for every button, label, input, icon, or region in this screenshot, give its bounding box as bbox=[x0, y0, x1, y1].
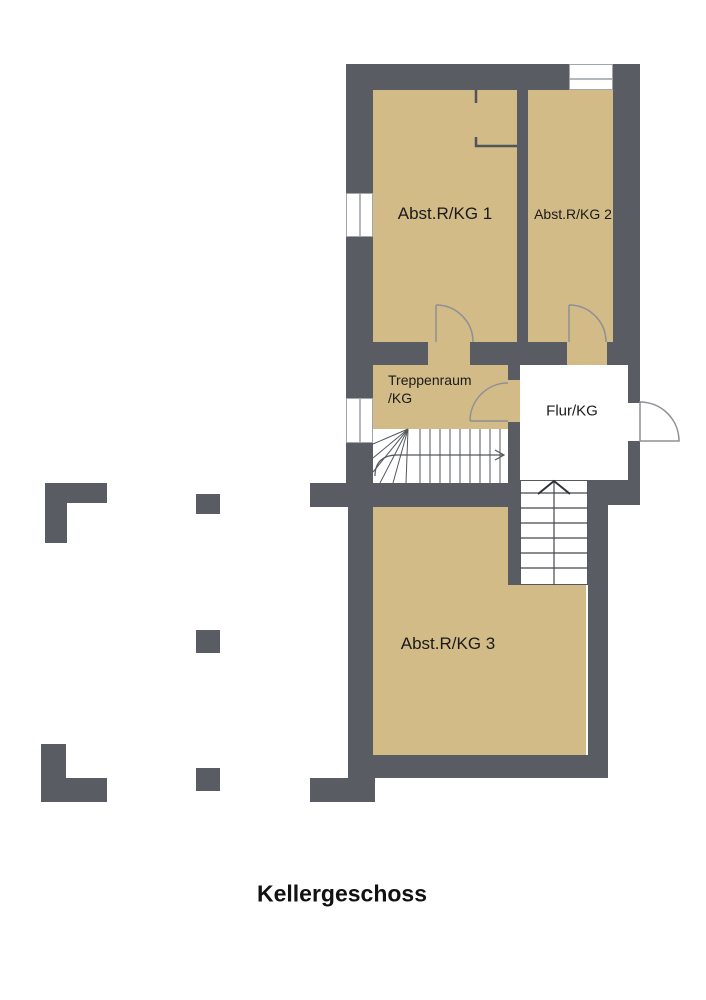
wall-right-upper bbox=[613, 90, 640, 365]
wall-room3-bottom bbox=[348, 755, 608, 778]
wall-trep-flur-upper bbox=[508, 365, 520, 380]
wall-flur-right-upper bbox=[628, 365, 640, 403]
winder-staircase bbox=[373, 429, 508, 483]
wall-below-room1-left bbox=[373, 342, 428, 365]
wall-room3-left bbox=[348, 507, 373, 755]
neighbor-wall-fragment bbox=[196, 630, 220, 653]
wall-divider-room1-room2 bbox=[517, 90, 528, 342]
neighbor-wall-fragment bbox=[41, 778, 107, 802]
wall-band-below-treppenraum bbox=[310, 483, 520, 507]
room-label-treppenraum: Treppenraum /KG bbox=[388, 372, 472, 407]
wall-below-room2-right bbox=[607, 342, 640, 365]
wall-below-room1-room2-mid bbox=[470, 342, 567, 365]
wall-block-right-of-stairs bbox=[588, 480, 640, 505]
room-label-abst-r-kg-2: Abst.R/KG 2 bbox=[534, 206, 612, 222]
door-exterior-swing bbox=[640, 402, 679, 441]
window-left-wall-lower bbox=[346, 398, 373, 443]
neighbor-wall-fragment bbox=[45, 483, 67, 543]
floor-plan-canvas: Abst.R/KG 1 Abst.R/KG 2 Treppenraum /KG … bbox=[0, 0, 706, 1000]
room-label-abst-r-kg-1: Abst.R/KG 1 bbox=[398, 204, 492, 224]
neighbor-wall-fragment bbox=[196, 768, 220, 791]
room-floor-flur bbox=[520, 365, 628, 480]
window-left-wall-upper bbox=[346, 193, 373, 237]
wall-room3-right bbox=[588, 505, 608, 755]
room-label-abst-r-kg-3: Abst.R/KG 3 bbox=[401, 634, 495, 654]
neighbor-wall-fragment bbox=[196, 494, 220, 514]
room-floor-abst-r-kg-1 bbox=[373, 90, 517, 365]
wall-flur-right-lower bbox=[628, 441, 640, 480]
floor-plan-title: Kellergeschoss bbox=[257, 881, 427, 908]
window-top-wall bbox=[569, 64, 613, 90]
room-label-flur: Flur/KG bbox=[546, 403, 598, 420]
straight-staircase bbox=[520, 480, 588, 585]
wall-step-bottom-left bbox=[310, 778, 375, 802]
room-floor-abst-r-kg-2 bbox=[528, 90, 613, 365]
